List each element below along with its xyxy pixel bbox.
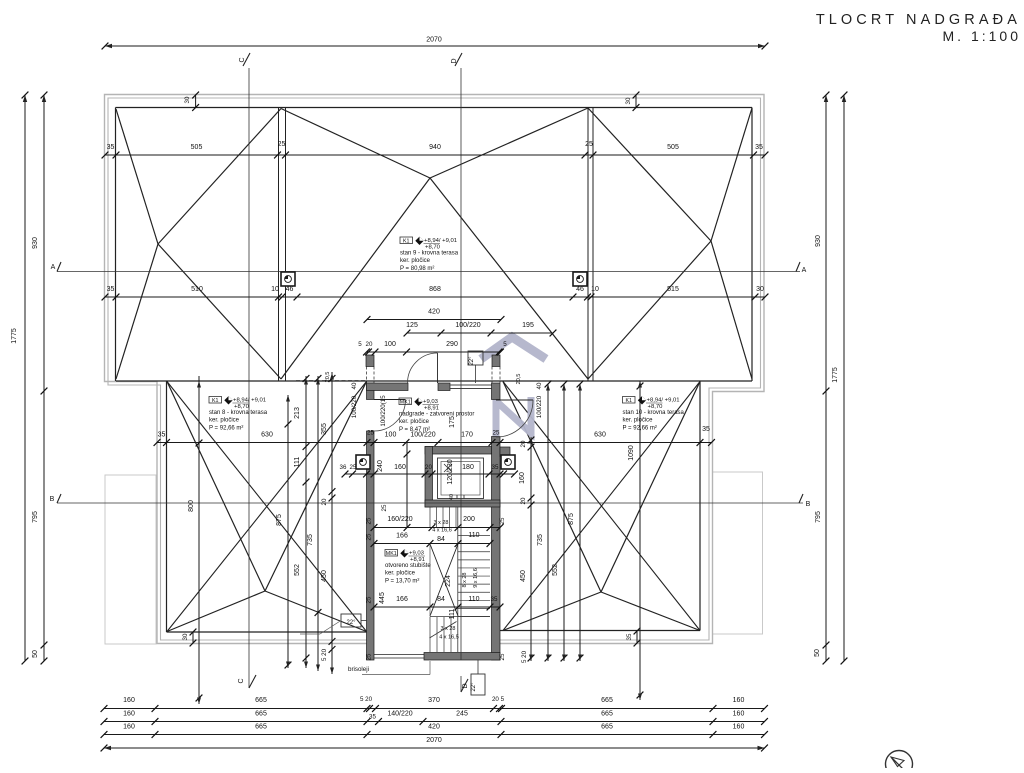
svg-text:111: 111 — [294, 457, 301, 468]
svg-text:A: A — [51, 264, 56, 271]
svg-text:TLOCRT NADGRAĐA: TLOCRT NADGRAĐA — [816, 12, 1021, 28]
svg-text:MK1: MK1 — [386, 551, 397, 557]
svg-text:1775: 1775 — [11, 328, 18, 344]
svg-text:35: 35 — [107, 144, 115, 151]
svg-text:A: A — [802, 267, 807, 274]
svg-text:D: D — [462, 683, 469, 688]
svg-text:110: 110 — [468, 596, 479, 603]
svg-text:930: 930 — [32, 237, 39, 249]
svg-text:170: 170 — [461, 432, 473, 439]
svg-text:C: C — [239, 57, 246, 62]
svg-text:735: 735 — [537, 534, 544, 546]
svg-text:P = 92,66 m²: P = 92,66 m² — [623, 426, 657, 432]
svg-text:35: 35 — [702, 426, 710, 433]
svg-text:25: 25 — [366, 653, 373, 660]
svg-text:1775: 1775 — [832, 367, 839, 383]
svg-text:ker. pločice: ker. pločice — [623, 418, 654, 424]
svg-text:160/220: 160/220 — [387, 516, 412, 523]
svg-text:515: 515 — [667, 286, 679, 293]
svg-text:100/220: 100/220 — [536, 395, 543, 418]
svg-text:+8,94/ +9,01: +8,94/ +9,01 — [424, 238, 457, 244]
svg-text:25: 25 — [366, 517, 373, 524]
svg-text:ker. pločice: ker. pločice — [399, 419, 430, 425]
svg-text:ker. pločice: ker. pločice — [400, 258, 431, 264]
svg-text:20: 20 — [425, 464, 432, 471]
svg-text:160: 160 — [733, 724, 745, 731]
svg-text:22°: 22° — [346, 620, 356, 626]
svg-text:200: 200 — [463, 516, 475, 523]
svg-text:940: 940 — [429, 144, 441, 151]
svg-text:46: 46 — [286, 286, 294, 293]
svg-text:K1: K1 — [626, 398, 633, 404]
svg-text:30: 30 — [184, 96, 191, 103]
svg-text:224: 224 — [445, 575, 452, 587]
svg-text:160: 160 — [733, 697, 745, 704]
svg-text:100: 100 — [384, 341, 396, 348]
svg-text:35: 35 — [755, 144, 763, 151]
svg-text:40: 40 — [449, 494, 455, 500]
svg-text:868: 868 — [429, 286, 441, 293]
svg-text:1090: 1090 — [628, 445, 635, 461]
svg-text:180: 180 — [462, 464, 474, 471]
svg-text:5: 5 — [358, 341, 362, 348]
svg-text:795: 795 — [32, 511, 39, 523]
svg-text:ker. pločice: ker. pločice — [209, 418, 240, 424]
svg-text:25: 25 — [366, 596, 373, 603]
svg-text:120/230: 120/230 — [447, 459, 454, 484]
svg-text:370: 370 — [428, 697, 440, 704]
svg-text:552: 552 — [294, 564, 301, 576]
svg-text:290: 290 — [446, 341, 458, 348]
svg-text:25: 25 — [366, 533, 373, 540]
svg-text:30: 30 — [625, 97, 632, 104]
svg-text:8 x 28: 8 x 28 — [462, 573, 468, 588]
svg-text:25: 25 — [493, 430, 500, 437]
svg-text:111: 111 — [449, 609, 456, 620]
svg-text:240: 240 — [377, 460, 384, 472]
svg-text:735: 735 — [307, 534, 314, 546]
svg-text:420: 420 — [428, 309, 440, 316]
svg-text:40: 40 — [351, 382, 358, 389]
svg-text:20: 20 — [520, 497, 527, 504]
svg-text:450: 450 — [520, 570, 527, 582]
svg-text:25: 25 — [499, 653, 506, 660]
svg-text:630: 630 — [261, 432, 273, 439]
svg-text:160: 160 — [123, 724, 135, 731]
svg-text:P = 80,98 m²: P = 80,98 m² — [400, 266, 434, 272]
svg-text:35: 35 — [369, 714, 376, 721]
svg-text:22°: 22° — [469, 356, 475, 366]
svg-text:46: 46 — [576, 286, 584, 293]
svg-text:20: 20 — [366, 341, 373, 348]
svg-text:510: 510 — [191, 286, 203, 293]
svg-text:50: 50 — [32, 650, 39, 658]
svg-text:25: 25 — [381, 504, 388, 511]
svg-text:25: 25 — [585, 141, 593, 148]
svg-text:brisoleji: brisoleji — [348, 666, 369, 673]
svg-text:35: 35 — [626, 633, 633, 640]
svg-text:166: 166 — [396, 596, 408, 603]
svg-text:552: 552 — [552, 564, 559, 576]
svg-text:100/220: 100/220 — [455, 322, 480, 329]
svg-text:795: 795 — [815, 511, 822, 523]
svg-text:stan 10 - krovna terasa: stan 10 - krovna terasa — [623, 410, 685, 416]
svg-text:160: 160 — [123, 711, 135, 718]
svg-text:125: 125 — [406, 322, 418, 329]
svg-text:930: 930 — [815, 235, 822, 247]
svg-text:40: 40 — [536, 382, 543, 389]
svg-text:20: 20 — [520, 440, 527, 447]
svg-text:160: 160 — [519, 472, 526, 484]
svg-text:30: 30 — [756, 286, 764, 293]
svg-text:160: 160 — [733, 711, 745, 718]
svg-text:665: 665 — [255, 724, 267, 731]
svg-text:2070: 2070 — [426, 737, 442, 744]
svg-text:K1: K1 — [212, 398, 219, 404]
svg-text:P = 8,47 m²: P = 8,47 m² — [399, 427, 430, 433]
svg-text:505: 505 — [667, 144, 679, 151]
svg-text:100: 100 — [385, 432, 397, 439]
svg-text:M. 1:100: M. 1:100 — [943, 28, 1021, 44]
svg-text:30: 30 — [182, 633, 189, 640]
svg-text:2070: 2070 — [426, 37, 442, 44]
svg-text:35: 35 — [491, 596, 498, 603]
svg-text:25: 25 — [499, 517, 506, 524]
svg-text:5: 5 — [503, 341, 507, 348]
svg-text:4 x 16,6: 4 x 16,6 — [432, 528, 452, 534]
svg-text:35: 35 — [107, 286, 115, 293]
svg-text:20 5: 20 5 — [492, 696, 505, 703]
svg-text:+8,94/ +9,01: +8,94/ +9,01 — [233, 397, 266, 403]
svg-text:9 x 16,6: 9 x 16,6 — [473, 568, 479, 588]
svg-text:3 x 28: 3 x 28 — [434, 520, 449, 526]
svg-text:10: 10 — [591, 286, 599, 293]
svg-text:20: 20 — [321, 498, 328, 505]
svg-text:800: 800 — [188, 500, 195, 512]
svg-text:4 x 16,5: 4 x 16,5 — [439, 635, 459, 641]
svg-text:P = 13,70 m²: P = 13,70 m² — [385, 579, 419, 585]
svg-text:K1: K1 — [403, 238, 410, 244]
svg-text:35: 35 — [158, 432, 166, 439]
svg-text:355: 355 — [321, 423, 328, 435]
svg-text:10: 10 — [271, 286, 279, 293]
svg-text:420: 420 — [428, 724, 440, 731]
svg-text:+8,94/ +9,01: +8,94/ +9,01 — [647, 397, 680, 403]
svg-text:C: C — [238, 678, 245, 683]
svg-text:505: 505 — [191, 144, 203, 151]
svg-text:245: 245 — [456, 711, 468, 718]
svg-text:630: 630 — [594, 432, 606, 439]
svg-text:665: 665 — [601, 711, 613, 718]
svg-text:875: 875 — [568, 513, 575, 525]
svg-text:20,5: 20,5 — [325, 372, 331, 383]
svg-text:110: 110 — [468, 532, 479, 539]
svg-text:D: D — [451, 58, 458, 63]
svg-text:otvoreno stubište: otvoreno stubište — [385, 563, 431, 569]
svg-text:665: 665 — [255, 697, 267, 704]
svg-text:160: 160 — [123, 697, 135, 704]
svg-text:22°: 22° — [471, 682, 477, 692]
svg-text:B: B — [806, 501, 811, 508]
svg-text:445: 445 — [379, 592, 386, 604]
svg-text:+9,03: +9,03 — [409, 550, 425, 556]
svg-text:ker. pločice: ker. pločice — [385, 571, 416, 577]
svg-text:665: 665 — [601, 724, 613, 731]
svg-text:36: 36 — [340, 464, 347, 471]
svg-text:50: 50 — [814, 649, 821, 657]
svg-text:100/220: 100/220 — [351, 395, 358, 418]
svg-text:35: 35 — [492, 464, 499, 471]
svg-text:nadgrade - zatvoreni prostor: nadgrade - zatvoreni prostor — [399, 412, 474, 418]
svg-text:stan 8 - krovna terasa: stan 8 - krovna terasa — [209, 410, 268, 416]
svg-text:195: 195 — [522, 322, 534, 329]
svg-text:875: 875 — [276, 514, 283, 526]
svg-text:450: 450 — [321, 570, 328, 582]
svg-text:stan 9 - krovna terasa: stan 9 - krovna terasa — [400, 251, 459, 257]
svg-text:100/220(15: 100/220(15 — [380, 395, 387, 427]
svg-text:665: 665 — [255, 711, 267, 718]
svg-text:84: 84 — [437, 596, 445, 603]
svg-text:25: 25 — [367, 430, 374, 437]
svg-text:213: 213 — [294, 407, 301, 419]
svg-text:5 20: 5 20 — [360, 696, 373, 703]
svg-text:25: 25 — [278, 141, 286, 148]
svg-text:5 20: 5 20 — [521, 650, 528, 663]
svg-text:P = 92,66 m²: P = 92,66 m² — [209, 426, 243, 432]
svg-text:84: 84 — [437, 536, 445, 543]
svg-text:175: 175 — [449, 416, 456, 428]
svg-text:B: B — [50, 496, 55, 503]
svg-text:160: 160 — [394, 464, 406, 471]
svg-text:665: 665 — [601, 697, 613, 704]
svg-text:+9,03: +9,03 — [423, 399, 439, 405]
svg-text:166: 166 — [396, 533, 408, 540]
svg-text:3 x 28: 3 x 28 — [441, 626, 456, 632]
svg-text:MK1: MK1 — [400, 399, 411, 405]
svg-text:5 20: 5 20 — [321, 648, 328, 661]
svg-text:20,5: 20,5 — [516, 374, 522, 385]
svg-text:140/220: 140/220 — [387, 711, 412, 718]
